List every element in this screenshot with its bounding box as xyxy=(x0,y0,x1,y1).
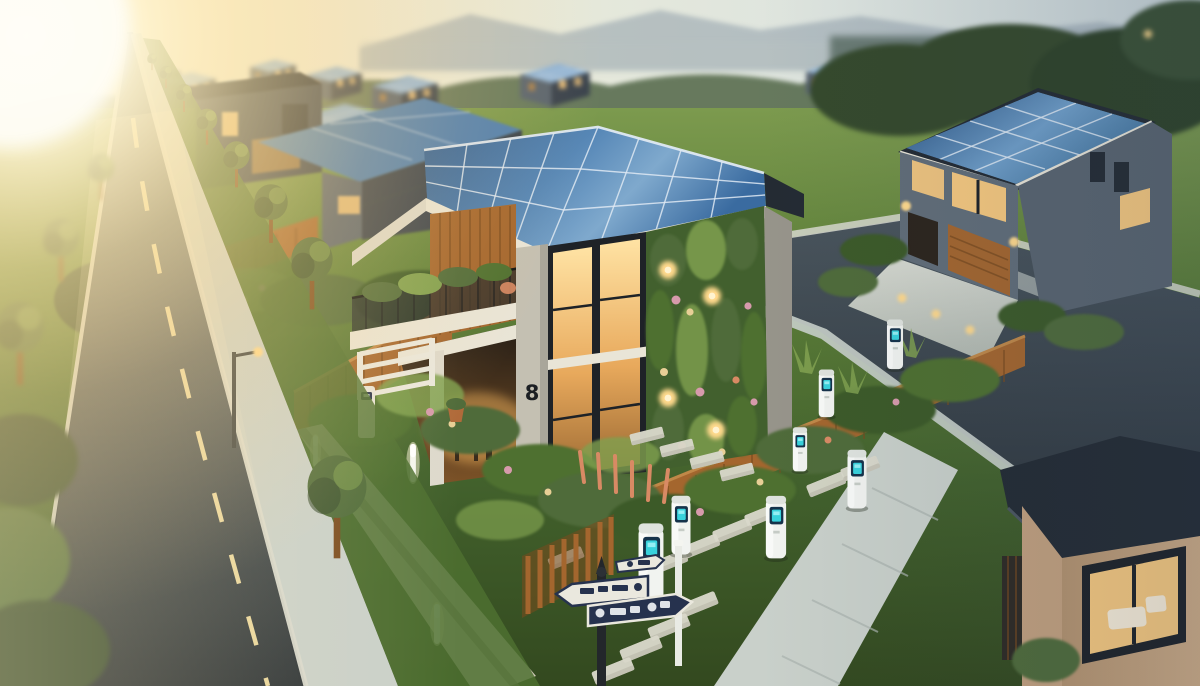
corner-shrub xyxy=(1012,638,1080,682)
ev-charger xyxy=(886,319,905,372)
scene-illustration: 8 xyxy=(0,0,1200,686)
house-number: 8 xyxy=(525,381,540,405)
porch-light xyxy=(901,201,911,211)
house-corner-wall xyxy=(764,206,792,452)
eco-neighborhood-render: 8 xyxy=(0,0,1200,686)
ev-charger xyxy=(764,496,788,562)
ev-charger xyxy=(846,450,868,512)
tan-corner-house xyxy=(1000,436,1200,686)
tan-house-side-fence xyxy=(1002,556,1022,660)
living-wall xyxy=(646,206,768,472)
ev-charger xyxy=(792,427,809,474)
ev-charger xyxy=(817,370,835,420)
